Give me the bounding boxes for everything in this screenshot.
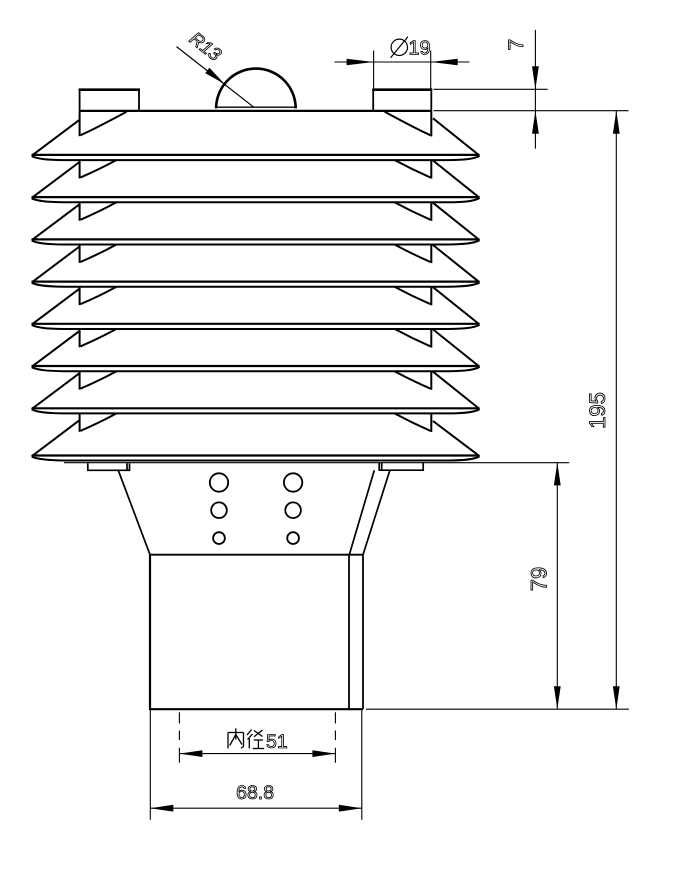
svg-text:7: 7 bbox=[505, 39, 528, 51]
svg-text:68.8: 68.8 bbox=[236, 782, 274, 804]
svg-text:195: 195 bbox=[585, 392, 610, 429]
svg-text:51: 51 bbox=[266, 731, 288, 753]
svg-text:19: 19 bbox=[408, 38, 430, 60]
svg-text:79: 79 bbox=[526, 567, 551, 591]
